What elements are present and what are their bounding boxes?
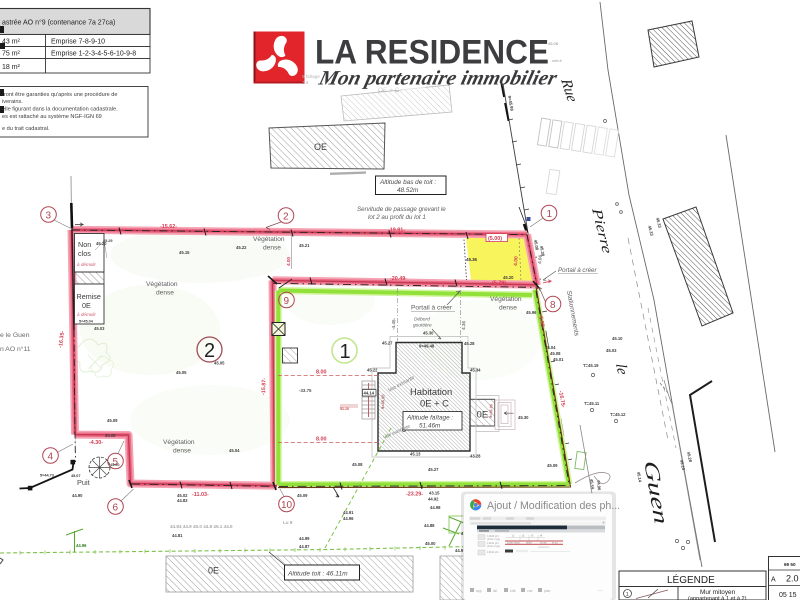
svg-text:clos: clos	[78, 249, 91, 258]
svg-text:45.30: 45.30	[423, 331, 434, 336]
svg-text:0E: 0E	[477, 410, 489, 421]
svg-text:9=45.95: 9=45.95	[380, 394, 386, 410]
svg-text:44.96: 44.96	[76, 543, 87, 548]
svg-text:Servitude de passage grevant l: Servitude de passage grevant le	[357, 206, 446, 213]
svg-text:45.30: 45.30	[518, 415, 529, 420]
svg-text:OE: OE	[314, 142, 327, 152]
svg-text:2: 2	[283, 212, 289, 223]
svg-text:2: 2	[204, 340, 215, 362]
svg-text:45.22: 45.22	[236, 245, 247, 250]
svg-text:T=45.12: T=45.12	[610, 412, 626, 417]
svg-text:45.21: 45.21	[299, 243, 310, 248]
svg-text:45.28: 45.28	[464, 341, 475, 346]
svg-text:45.03: 45.03	[606, 348, 617, 353]
svg-text:45.20: 45.20	[503, 275, 514, 280]
svg-text:8: 8	[550, 300, 556, 311]
svg-text:45.09: 45.09	[547, 463, 558, 468]
svg-text:45.05: 45.05	[176, 370, 187, 375]
svg-text:...: ...	[598, 587, 602, 593]
svg-text:dolor: dolor	[526, 540, 532, 544]
svg-text:dense: dense	[156, 290, 174, 297]
svg-text:dense: dense	[173, 448, 191, 455]
svg-text:Végétation: Végétation	[163, 439, 195, 446]
svg-text:web.fr: web.fr	[552, 59, 563, 63]
svg-text:45.20: 45.20	[96, 241, 107, 246]
svg-text:69 50: 69 50	[784, 562, 796, 567]
svg-text:Emprise 1-2-3-4-5-6-10-9-8: Emprise 1-2-3-4-5-6-10-9-8	[51, 51, 136, 58]
svg-text:44.84 44.9 45.0 44.8 45.1: 44.84 44.9 45.0 44.8 45.1 44.9	[170, 524, 233, 529]
svg-text:45.08: 45.08	[105, 433, 116, 438]
svg-text:14642 pht: 14642 pht	[487, 550, 499, 554]
svg-text:Portail à créer: Portail à créer	[411, 305, 453, 312]
svg-text:Non: Non	[78, 240, 91, 249]
svg-text:1: 1	[626, 592, 629, 598]
svg-text:photo 1.jpg: photo 1.jpg	[487, 537, 500, 541]
svg-text:0E: 0E	[82, 301, 91, 310]
svg-text:e du trait cadastral.: e du trait cadastral.	[2, 126, 50, 132]
svg-text:-15.62-: -15.62-	[160, 224, 177, 230]
svg-text:app: app	[476, 589, 482, 593]
svg-text:44.99: 44.99	[299, 536, 310, 541]
svg-text:2.0: 2.0	[786, 574, 799, 584]
svg-text:Mur mitoyen: Mur mitoyen	[700, 589, 736, 596]
svg-text:45.01: 45.01	[553, 357, 564, 362]
svg-text:iverains.: iverains.	[2, 99, 23, 105]
svg-text:1: 1	[340, 341, 351, 363]
svg-text:et co: et co	[552, 540, 558, 544]
svg-text:T=45.11: T=45.11	[584, 401, 600, 406]
svg-text:0E + C: 0E + C	[420, 398, 449, 409]
svg-text:Altitude bas de toit :: Altitude bas de toit :	[379, 179, 436, 186]
svg-text:44.90: 44.90	[72, 493, 83, 498]
svg-text:LÉGENDE: LÉGENDE	[667, 573, 715, 586]
svg-text:-19.81-: -19.81-	[388, 228, 405, 234]
svg-text:3: 3	[46, 211, 52, 222]
svg-text:45.07: 45.07	[71, 474, 81, 478]
svg-text:45.05: 45.05	[214, 361, 225, 366]
svg-text:2.8: 2.8	[302, 80, 309, 85]
svg-text:45.15: 45.15	[179, 250, 190, 255]
svg-text:le: le	[612, 364, 630, 375]
svg-text:-11.03-: -11.03-	[192, 492, 209, 498]
svg-text:rront être garanties qu'après: rront être garanties qu'après une procéd…	[2, 92, 118, 98]
svg-text:45.22: 45.22	[367, 368, 378, 373]
svg-text:Emprise 7-8-9-10: Emprise 7-8-9-10	[51, 39, 105, 46]
svg-text:Lorem ipsu: Lorem ipsu	[507, 540, 520, 544]
svg-text:(5.79): (5.79)	[492, 281, 506, 287]
svg-text:Puit: Puit	[77, 478, 90, 487]
svg-text:Lu 8: Lu 8	[283, 520, 293, 525]
svg-text:45.09: 45.09	[297, 493, 308, 498]
svg-text:(appartenant à 1 et à 2): (appartenant à 1 et à 2)	[688, 596, 747, 600]
svg-text:44.91: 44.91	[343, 510, 354, 515]
svg-text:45.08: 45.08	[352, 462, 363, 467]
svg-text:44.87: 44.87	[299, 544, 310, 549]
svg-text:43.28: 43.28	[470, 454, 481, 459]
svg-text:44.83: 44.83	[177, 498, 188, 503]
svg-text:05 15: 05 15	[779, 592, 797, 599]
svg-text:44.98: 44.98	[430, 505, 441, 510]
svg-text:recherche: recherche	[538, 545, 550, 549]
svg-text:48.52m: 48.52m	[397, 187, 419, 194]
svg-text:e le Guen: e le Guen	[0, 332, 30, 339]
svg-text:dense: dense	[499, 305, 517, 312]
svg-text:(5.00): (5.00)	[488, 236, 502, 242]
svg-text:45.00: 45.00	[110, 463, 120, 467]
svg-text:6: 6	[113, 503, 119, 514]
svg-text:Portail à créer: Portail à créer	[558, 267, 597, 274]
svg-text:4.36: 4.36	[461, 320, 466, 330]
svg-text:-15.87-: -15.87-	[261, 378, 268, 395]
svg-text:4.00: 4.00	[286, 256, 291, 266]
svg-text:9: 9	[284, 296, 290, 307]
svg-text:51.10: 51.10	[340, 407, 349, 411]
svg-text:es est rattaché au système NGF: es est rattaché au système NGF-IGN 69	[2, 114, 102, 120]
svg-text:Ajout / Modification des ph...: Ajout / Modification des ph...	[487, 500, 620, 512]
svg-text:-4.30-: -4.30-	[89, 440, 103, 446]
svg-text:9=45.95: 9=45.95	[489, 404, 493, 418]
svg-text:sit am: sit am	[540, 540, 547, 544]
svg-text:à démolir: à démolir	[77, 312, 96, 317]
svg-text:45.13: 45.13	[410, 452, 421, 457]
svg-text:9 faîtage: 9 faîtage	[302, 74, 320, 79]
svg-text:75 m²: 75 m²	[2, 51, 21, 58]
svg-text:Végétation: Végétation	[146, 281, 178, 288]
svg-text:44.81: 44.81	[172, 533, 183, 538]
svg-text:51.46m: 51.46m	[419, 423, 441, 430]
svg-text:45.04: 45.04	[545, 345, 556, 350]
svg-text:10: 10	[281, 500, 293, 511]
svg-text:T=45.19: T=45.19	[583, 363, 599, 368]
svg-text:45.10: 45.10	[612, 336, 623, 341]
svg-text:5=44.73: 5=44.73	[40, 474, 54, 478]
svg-text:Mon partenaire immobilier: Mon partenaire immobilier	[316, 66, 561, 90]
svg-text:Remise: Remise	[77, 292, 101, 301]
svg-text:44.14: 44.14	[364, 391, 375, 396]
svg-text:lot 2 au profit du lot 1: lot 2 au profit du lot 1	[368, 214, 426, 221]
svg-text:dense: dense	[263, 245, 281, 252]
svg-text:Habitation: Habitation	[410, 386, 452, 397]
svg-text:list: list	[493, 589, 497, 593]
svg-text:vue: vue	[527, 589, 533, 593]
svg-text:45.27: 45.27	[382, 341, 393, 346]
svg-text:à démolir: à démolir	[77, 262, 96, 267]
svg-text:45.08: 45.08	[550, 351, 561, 356]
svg-text:edit: edit	[510, 589, 516, 593]
svg-text:8.00: 8.00	[316, 437, 327, 443]
svg-text:-33.75: -33.75	[299, 388, 312, 393]
svg-text:elle figurant dans la document: elle figurant dans la documentation cada…	[2, 107, 118, 113]
svg-text:-4.45-: -4.45-	[391, 317, 396, 330]
svg-text:plan: plan	[544, 589, 551, 593]
svg-text:44.96: 44.96	[343, 516, 354, 521]
svg-text:45.96: 45.96	[526, 310, 537, 315]
svg-text:8.00: 8.00	[316, 370, 327, 376]
svg-text:4.06: 4.06	[537, 254, 543, 264]
svg-text:44.92: 44.92	[428, 497, 439, 502]
svg-text:45.34: 45.34	[470, 368, 481, 373]
svg-text:Altitude faîtage :: Altitude faîtage :	[406, 415, 453, 422]
svg-text:Altitude toit : 46.11m: Altitude toit : 46.11m	[287, 571, 348, 578]
svg-text:43.15: 43.15	[429, 491, 440, 496]
svg-text:-23.29-: -23.29-	[406, 492, 423, 498]
svg-text:45.08: 45.08	[548, 41, 559, 46]
svg-text:Débord: Débord	[414, 317, 430, 323]
svg-text:5=45.04: 5=45.04	[79, 320, 94, 324]
svg-text:photo 2.jpg: photo 2.jpg	[487, 544, 500, 548]
svg-text:0E: 0E	[208, 566, 219, 576]
svg-text:4.00: 4.00	[513, 256, 520, 266]
svg-text:A: A	[771, 577, 776, 584]
svg-text:4: 4	[48, 452, 54, 463]
svg-text:45.00: 45.00	[425, 541, 436, 546]
svg-text:45.04: 45.04	[229, 448, 240, 453]
svg-text:45.03: 45.03	[94, 326, 105, 331]
svg-text:1: 1	[547, 209, 553, 220]
svg-text:Végétation: Végétation	[490, 296, 522, 303]
svg-text:45.36: 45.36	[466, 257, 478, 262]
svg-text:45.09: 45.09	[107, 418, 118, 423]
svg-text:-20.49-: -20.49-	[390, 276, 407, 282]
svg-text:astrée AO n°9 (contenance 7a 2: astrée AO n°9 (contenance 7a 27ca)	[2, 19, 115, 27]
svg-text:44.88: 44.88	[424, 523, 435, 528]
svg-text:n AO n°11: n AO n°11	[0, 345, 31, 353]
svg-text:gouttière: gouttière	[413, 323, 432, 329]
svg-text:45.27: 45.27	[428, 467, 439, 472]
svg-text:18 m²: 18 m²	[2, 64, 21, 71]
svg-text:9=49.48: 9=49.48	[419, 344, 435, 349]
svg-text:Végétation: Végétation	[253, 236, 285, 243]
